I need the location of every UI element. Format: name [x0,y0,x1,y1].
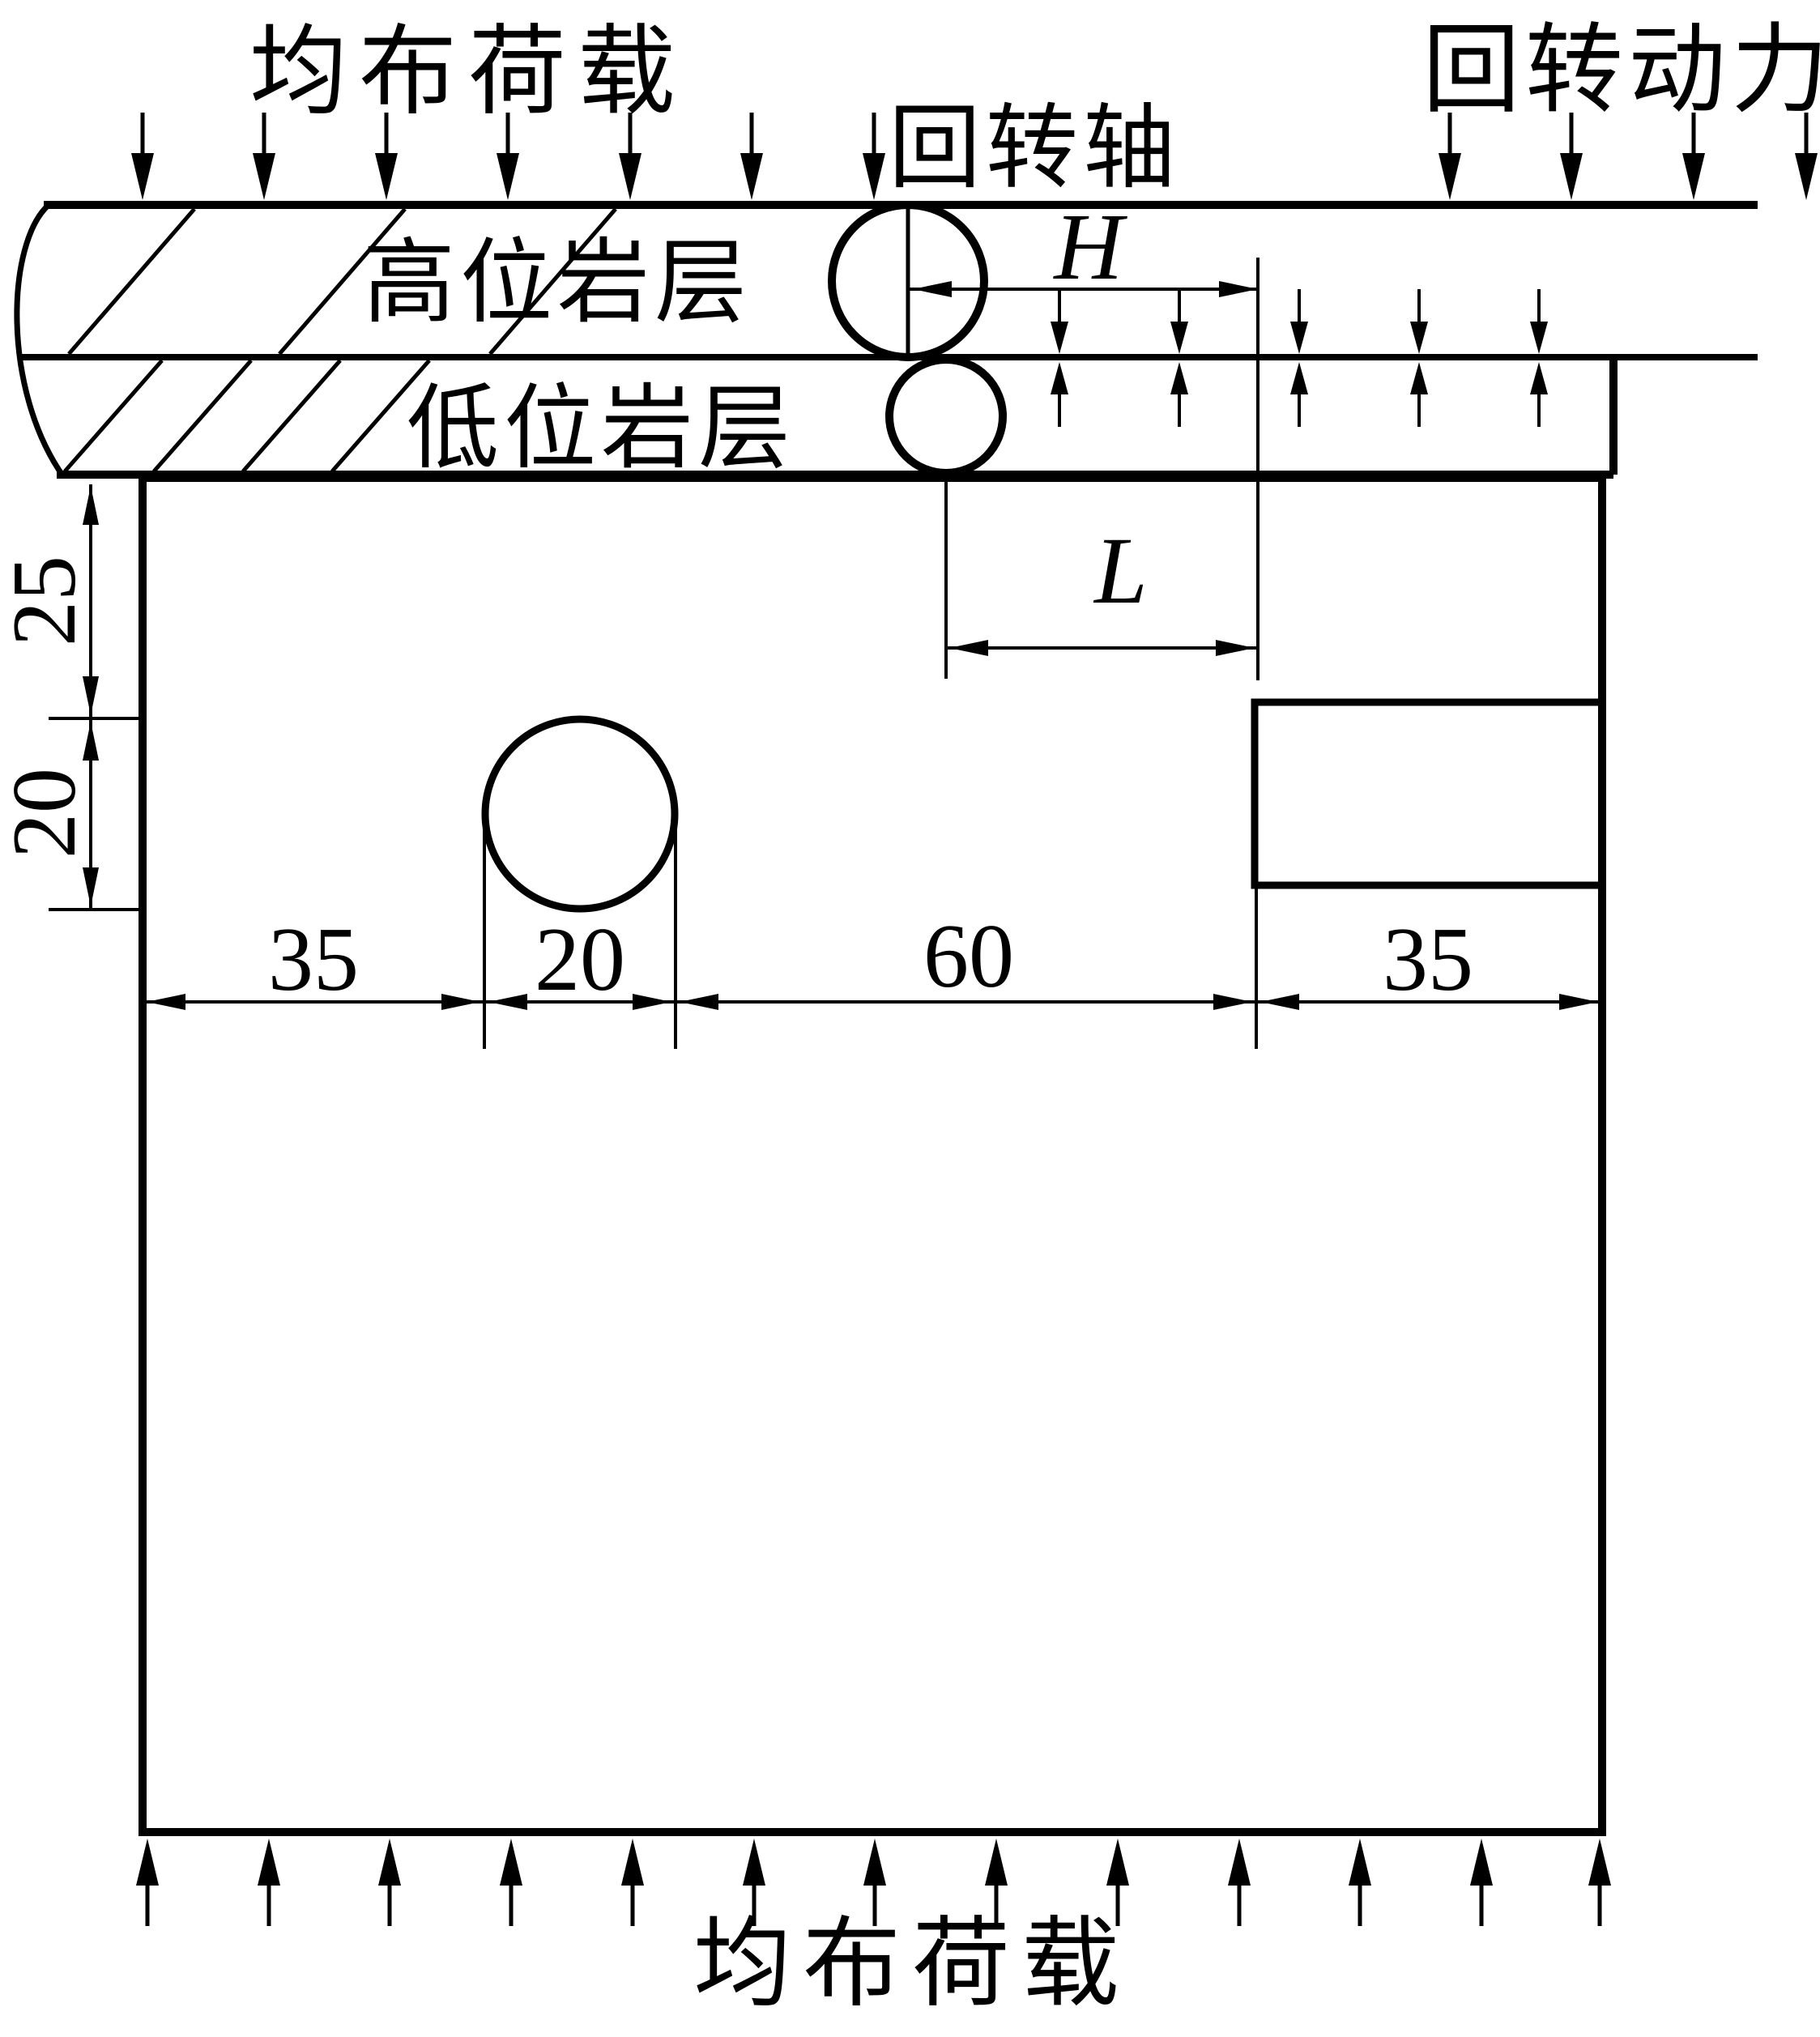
label-rotary-power: 回转动力 [1422,17,1820,126]
lower-stratum-beam [57,354,1613,475]
opening-circle [485,719,675,909]
dimension-left-column: 25 20 [0,484,143,910]
dim-label-25: 25 [0,556,95,646]
dimension-L: L [946,479,1258,679]
beam-left-curve [17,205,63,476]
upper-stratum-beam [17,205,1758,476]
dim-label-20-bottom: 20 [535,910,625,1010]
interlayer-arrows-down [1051,289,1548,354]
dim-label-35-left: 35 [268,910,359,1010]
label-bottom-distributed-load: 均布荷载 [693,1911,1131,2019]
label-rotary-axis: 回转轴 [889,97,1180,200]
label-lower-stratum: 低位岩层 [407,377,795,480]
dim-label-35-right: 35 [1383,910,1473,1010]
dimension-H: H [908,194,1258,680]
dim-label-L: L [1093,518,1148,624]
interlayer-arrows-up [1051,362,1548,427]
label-top-distributed-load: 均布荷载 [249,19,687,127]
rotation-hinges [832,205,1003,473]
dim-label-60: 60 [923,906,1014,1007]
lower-hinge-circle [889,360,1003,473]
right-side-notch [1255,702,1602,885]
dim-label-20-left: 20 [0,768,95,859]
hatch-lower-stratum [65,360,429,471]
label-upper-stratum: 高位岩层 [363,232,752,335]
rotary-power-arrows [1439,113,1818,200]
diagram-canvas: H L 25 20 35 20 60 35 均布荷载 回转动力 回转 [0,0,1820,2037]
mining-strata-mechanics-diagram: H L 25 20 35 20 60 35 均布荷载 回转动力 回转 [0,0,1820,2037]
dimension-bottom-row: 35 20 60 35 [143,816,1602,1049]
rock-mass-body [143,478,1602,1832]
dim-label-H: H [1052,194,1127,300]
